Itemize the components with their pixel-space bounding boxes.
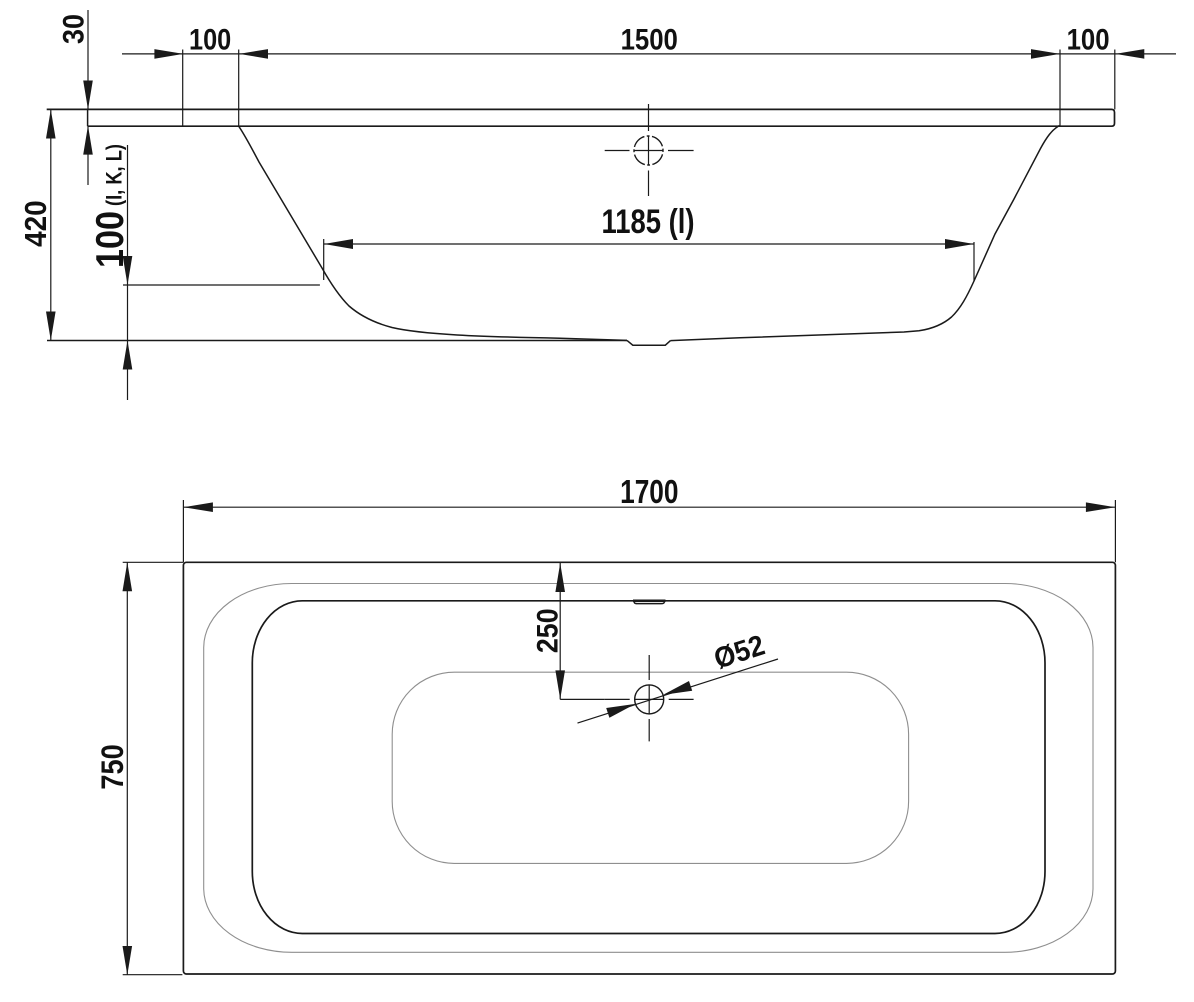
svg-text:1500: 1500 [621, 24, 678, 57]
svg-text:250: 250 [532, 608, 565, 653]
svg-text:1700: 1700 [620, 473, 678, 510]
svg-text:750: 750 [94, 744, 130, 789]
svg-text:420: 420 [18, 200, 53, 247]
svg-text:100: 100 [89, 211, 132, 268]
svg-text:1185 (l): 1185 (l) [602, 203, 695, 241]
svg-text:100: 100 [1067, 24, 1110, 57]
svg-text:(I, K, L): (I, K, L) [102, 144, 127, 206]
svg-text:100: 100 [189, 24, 231, 57]
svg-text:30: 30 [58, 14, 91, 44]
